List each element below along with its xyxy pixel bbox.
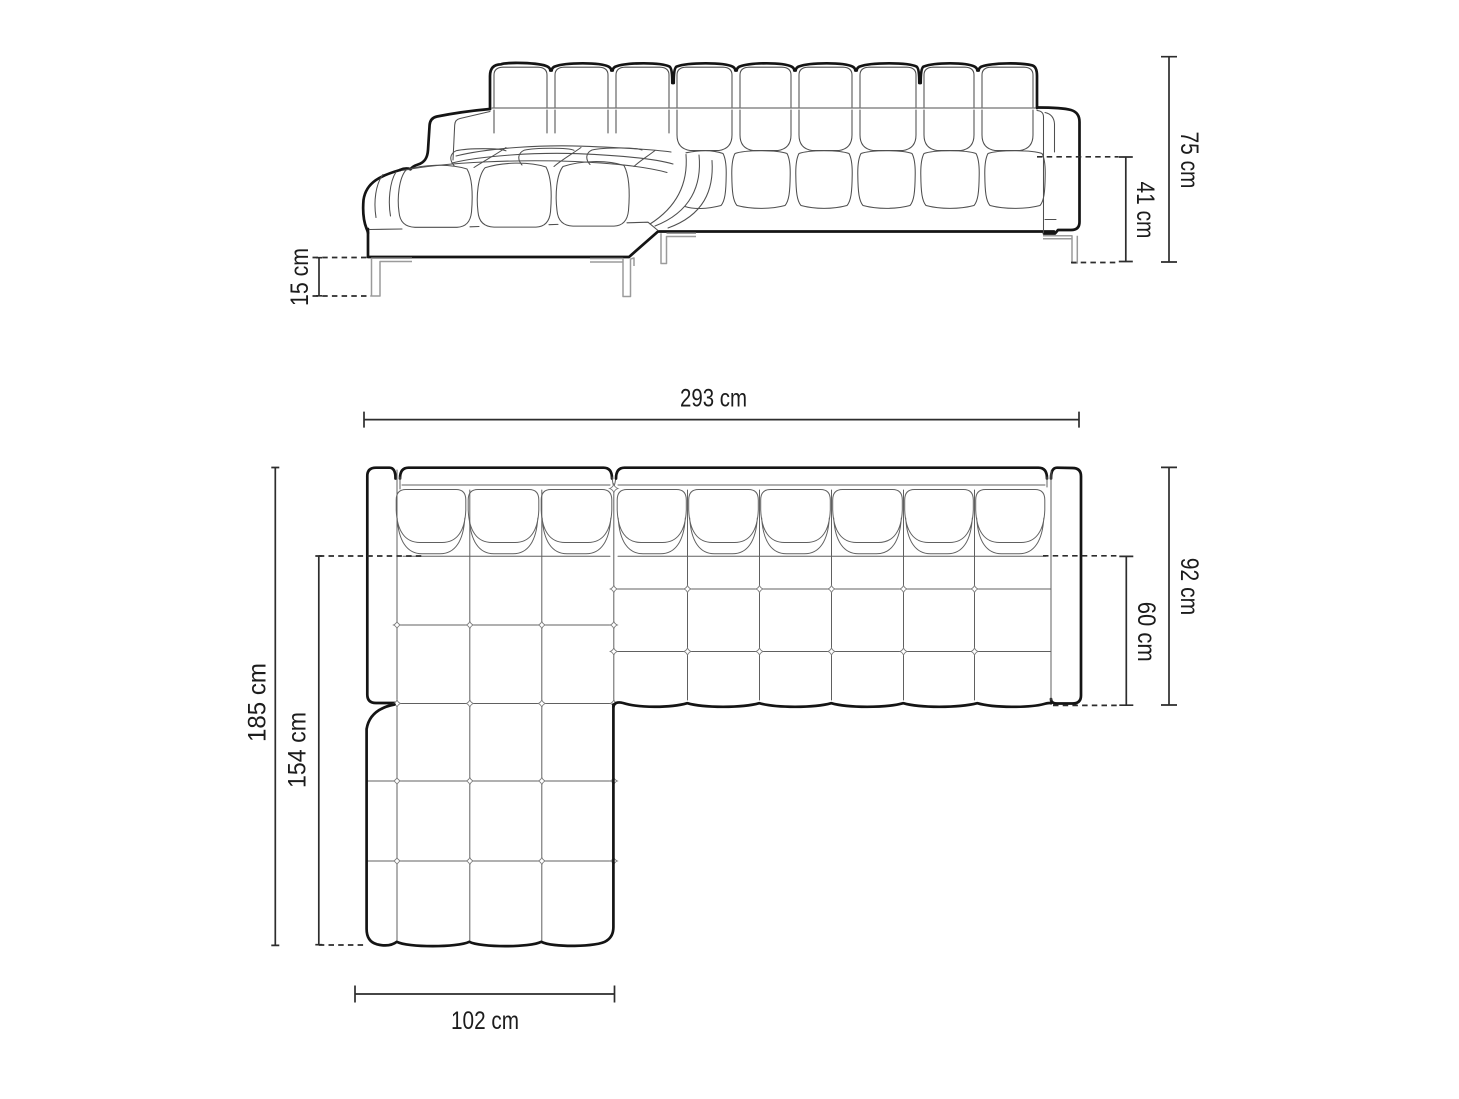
svg-text:60 cm: 60 cm (1132, 602, 1160, 662)
svg-text:102 cm: 102 cm (451, 1007, 519, 1035)
svg-text:75 cm: 75 cm (1175, 132, 1203, 189)
svg-text:15 cm: 15 cm (286, 248, 314, 306)
svg-text:154 cm: 154 cm (284, 712, 312, 788)
svg-text:41 cm: 41 cm (1131, 182, 1159, 239)
svg-text:185 cm: 185 cm (244, 663, 272, 742)
svg-text:293 cm: 293 cm (680, 385, 747, 413)
svg-text:92 cm: 92 cm (1175, 558, 1203, 616)
